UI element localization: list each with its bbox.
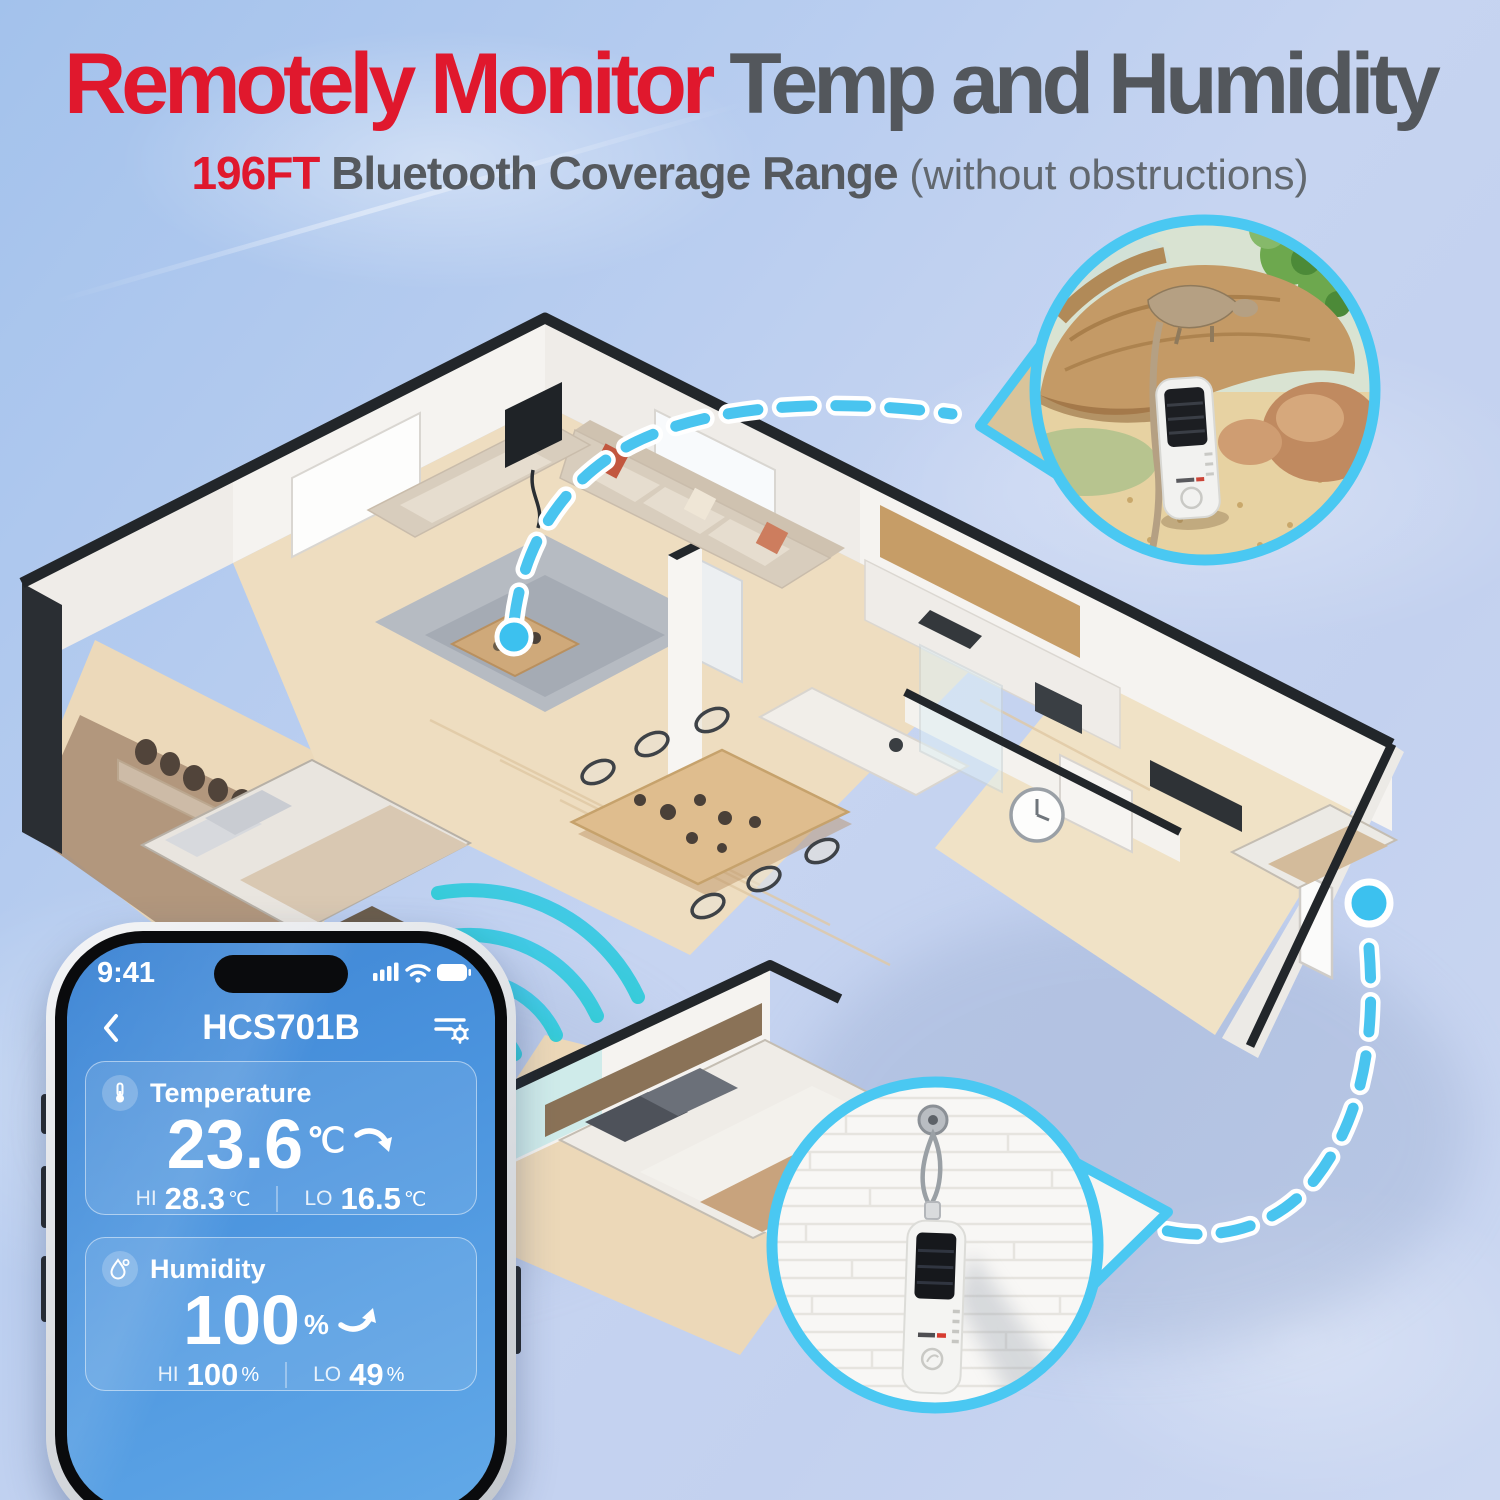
smartphone: 9:41 (46, 922, 516, 1500)
lo-label: LO (304, 1187, 332, 1211)
humidity-card: Humidity 100 % HI 100 % (85, 1237, 477, 1391)
filter-gear-icon (432, 1012, 470, 1044)
hi-value: 100 (187, 1357, 239, 1393)
status-time: 9:41 (97, 957, 155, 990)
lo-value: 16.5 (341, 1181, 401, 1217)
temperature-value: 23.6 (167, 1107, 303, 1181)
thermometer-icon (102, 1075, 138, 1111)
hi-value: 28.3 (165, 1181, 225, 1217)
card-label: Humidity (150, 1254, 266, 1285)
dynamic-island (214, 955, 348, 993)
settings-button[interactable] (429, 1012, 473, 1044)
title-highlight: Remotely Monitor (64, 36, 710, 132)
chevron-left-icon (101, 1012, 121, 1044)
subtitle-highlight: 196FT (191, 147, 319, 199)
card-label: Temperature (150, 1078, 312, 1109)
droplet-icon (102, 1251, 138, 1287)
marketing-image: 9:41 (0, 0, 1500, 1500)
cellular-bars-icon (373, 963, 399, 982)
app-screen: 9:41 (67, 943, 495, 1500)
hi-label: HI (158, 1363, 179, 1387)
humidity-value: 100 (183, 1283, 300, 1357)
wall-sensor-callout (770, 1082, 1168, 1408)
wifi-icon (407, 966, 429, 975)
battery-full-icon (437, 964, 471, 981)
title-rest: Temp and Humidity (710, 36, 1435, 132)
curved-arrow-down-icon (353, 1125, 395, 1164)
brand-logo (918, 1332, 935, 1337)
lo-unit: % (387, 1364, 405, 1387)
temperature-card: Temperature 23.6 ℃ HI 28.3 ℃ (85, 1061, 477, 1215)
hi-unit: ℃ (228, 1187, 250, 1212)
page-title: Remotely Monitor Temp and Humidity (0, 40, 1500, 129)
nav-bar: HCS701B (89, 1005, 473, 1051)
back-button[interactable] (89, 1012, 133, 1044)
hi-unit: % (241, 1364, 259, 1387)
lo-label: LO (313, 1363, 341, 1387)
terrarium-callout (980, 211, 1382, 572)
device-title: HCS701B (89, 1008, 473, 1048)
status-icons (373, 959, 471, 987)
sensor-device (902, 1220, 966, 1394)
lo-unit: ℃ (404, 1187, 426, 1212)
temperature-unit: ℃ (307, 1121, 345, 1161)
humidity-unit: % (304, 1309, 329, 1341)
curved-arrow-up-icon (337, 1301, 379, 1340)
divider (285, 1362, 287, 1388)
subtitle-note: (without obstructions) (909, 151, 1308, 198)
lo-value: 49 (349, 1357, 383, 1393)
divider (276, 1186, 278, 1212)
page-subtitle: 196FT Bluetooth Coverage Range (without … (0, 146, 1500, 200)
hi-label: HI (136, 1187, 157, 1211)
subtitle-main: Bluetooth Coverage Range (319, 147, 909, 199)
